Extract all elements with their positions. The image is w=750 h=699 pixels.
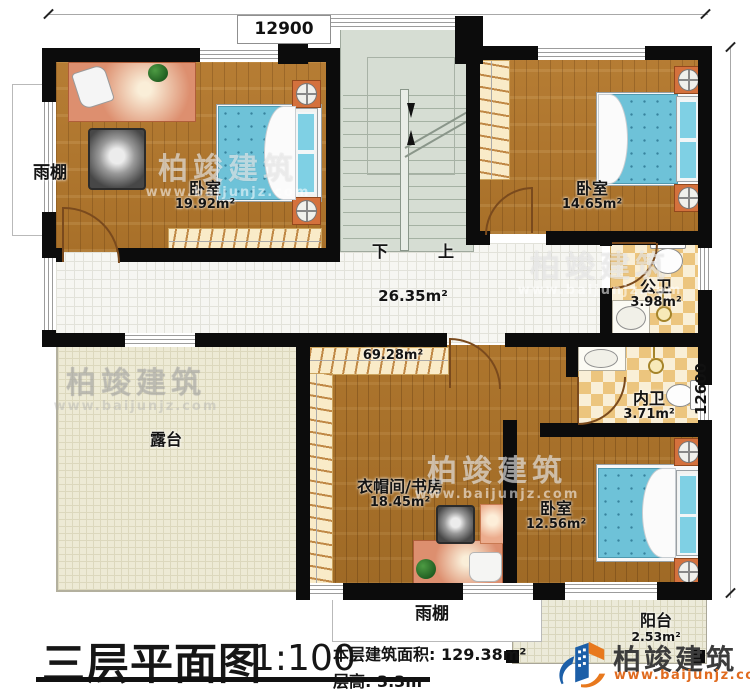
wall	[657, 582, 712, 600]
chair	[469, 552, 502, 582]
terrace-floor	[56, 343, 304, 592]
pillow	[678, 100, 698, 140]
window	[42, 258, 56, 330]
wall	[698, 46, 712, 248]
computer-monitor	[88, 128, 146, 190]
dimension-value: 12900	[254, 19, 313, 39]
room-area: 12.56m²	[496, 518, 616, 533]
nightstand-lamp-icon	[678, 187, 699, 209]
room-area: 19.92m²	[145, 198, 265, 213]
wall	[118, 248, 340, 262]
brand-url: www.baijunjz.com	[614, 668, 750, 683]
wall	[195, 333, 447, 347]
stair-direction: 上	[433, 243, 459, 261]
wall	[566, 347, 578, 377]
room-area: 69.28m²	[343, 349, 443, 364]
washbasin	[584, 349, 618, 368]
floor-height-line: 层高: 3.3m	[333, 668, 422, 692]
wall	[296, 340, 310, 600]
room-area: 26.35m²	[353, 288, 473, 305]
wall	[480, 46, 538, 60]
window	[538, 46, 645, 60]
room-label-private-bath: 内卫 3.71m²	[599, 390, 699, 422]
room-label-cloak-study: 衣帽间/书房 18.45m²	[330, 478, 470, 510]
floor-area-line: 本层建筑面积: 129.38m²	[333, 641, 526, 665]
nightstand-lamp-icon	[678, 561, 699, 583]
stair-down-label: 下	[367, 243, 393, 261]
room-name: 卧室	[145, 180, 265, 198]
pillow	[678, 474, 698, 516]
room-area: 3.98m²	[606, 296, 706, 311]
floor-plan: 卧室 19.92m² 卧室 14.65m² 公卫 3.98m² 内卫 3.71m…	[0, 0, 750, 699]
plant	[148, 64, 168, 82]
window	[42, 102, 56, 212]
wall	[600, 236, 612, 246]
stair-direction: 下	[367, 243, 393, 261]
window	[125, 333, 195, 347]
page-title: 三层平面图	[42, 630, 262, 692]
room-name: 卧室	[532, 180, 652, 198]
wall	[278, 48, 340, 62]
canopy-left-label: 雨棚	[21, 164, 79, 183]
wall	[540, 423, 712, 437]
wall	[698, 420, 712, 600]
bed-blanket	[264, 106, 296, 200]
closet	[478, 60, 510, 180]
window	[565, 582, 657, 600]
room-name: 公卫	[606, 278, 706, 296]
brand-logo-icon	[552, 634, 610, 692]
stair-up-label: 上	[433, 243, 459, 261]
upper-zone-area-label: 69.28m²	[343, 349, 443, 364]
wall	[42, 48, 56, 102]
window	[200, 48, 278, 62]
wall	[466, 60, 480, 245]
stair-arrow-up	[407, 130, 415, 145]
window	[463, 583, 533, 600]
pillow	[678, 140, 698, 180]
nightstand-lamp-icon	[678, 441, 699, 463]
shower-head-icon	[648, 358, 664, 374]
room-area: 3.71m²	[599, 408, 699, 423]
stairwell	[340, 28, 474, 252]
room-name: 卧室	[496, 500, 616, 518]
room-label-public-bath: 公卫 3.98m²	[606, 278, 706, 310]
dimension-line-right	[730, 46, 731, 598]
room-label-bedroom-tr: 卧室 14.65m²	[532, 180, 652, 212]
room-name: 衣帽间/书房	[330, 478, 470, 496]
wall	[326, 62, 340, 252]
pillow	[296, 152, 316, 194]
wall	[455, 16, 483, 64]
wall	[42, 212, 56, 258]
wall	[48, 48, 200, 62]
terrace-label: 露台	[116, 431, 216, 449]
stair-arrow-down	[407, 103, 415, 118]
toilet-bowl	[653, 248, 683, 274]
wall	[505, 333, 712, 347]
nightstand-lamp-icon	[296, 83, 317, 105]
room-name: 雨棚	[21, 164, 79, 183]
nightstand	[292, 80, 321, 108]
pillow	[678, 515, 698, 555]
pillow	[296, 112, 316, 152]
window	[310, 583, 343, 600]
canopy-bottom-label: 雨棚	[402, 605, 462, 624]
computer-monitor	[436, 505, 475, 544]
bed-blanket	[642, 468, 676, 558]
dimension-line-top	[48, 14, 708, 15]
room-area: 14.65m²	[532, 198, 652, 213]
wall	[343, 583, 463, 600]
nightstand	[292, 197, 321, 225]
room-label-bedroom-tl: 卧室 19.92m²	[145, 180, 265, 212]
dimension-top: 12900	[237, 15, 331, 44]
room-name: 露台	[116, 431, 216, 449]
wall	[42, 333, 125, 347]
room-name: 雨棚	[402, 605, 462, 624]
room-name: 内卫	[599, 390, 699, 408]
hall-area-label: 26.35m²	[353, 288, 473, 305]
room-area: 18.45m²	[330, 496, 470, 511]
wall	[533, 583, 565, 600]
plant	[416, 559, 436, 579]
nightstand-lamp-icon	[296, 200, 317, 222]
room-label-bedroom-br: 卧室 12.56m²	[496, 500, 616, 532]
room-name: 阳台	[606, 612, 706, 630]
nightstand-lamp-icon	[678, 69, 699, 91]
